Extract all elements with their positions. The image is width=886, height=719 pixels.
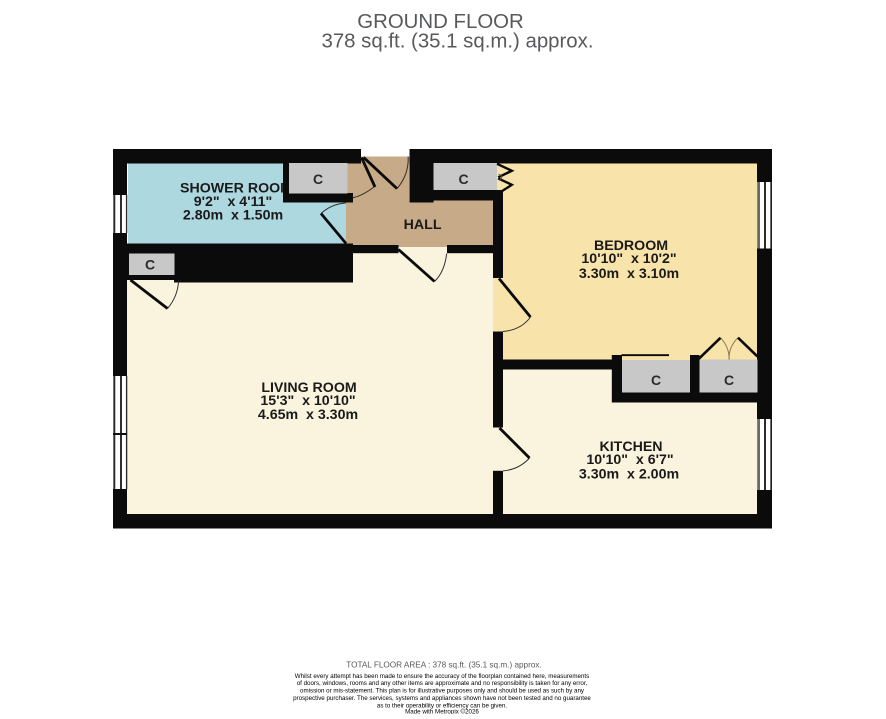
svg-text:C: C — [458, 171, 468, 187]
svg-text:of doors, windows, rooms and a: of doors, windows, rooms and any other i… — [297, 680, 588, 687]
svg-text:C: C — [313, 171, 323, 187]
svg-text:4.65m x 3.30m: 4.65m x 3.30m — [258, 407, 358, 423]
svg-text:378 sq.ft. (35.1 sq.m.) approx: 378 sq.ft. (35.1 sq.m.) approx. — [321, 31, 593, 53]
svg-text:10'10" x 6'7": 10'10" x 6'7" — [586, 452, 673, 468]
svg-text:Made with Metropix ©2026: Made with Metropix ©2026 — [405, 709, 479, 715]
svg-text:TOTAL FLOOR AREA : 378 sq.ft.: TOTAL FLOOR AREA : 378 sq.ft. (35.1 sq.m… — [346, 660, 542, 669]
svg-text:C: C — [651, 372, 661, 388]
svg-text:Whilst every attempt has been: Whilst every attempt has been made to en… — [295, 673, 589, 680]
svg-text:2.80m x 1.50m: 2.80m x 1.50m — [183, 208, 283, 224]
svg-text:prospective purchaser. The ser: prospective purchaser. The services, sys… — [293, 695, 591, 702]
svg-text:3.30m x 3.10m: 3.30m x 3.10m — [579, 266, 679, 282]
svg-text:10'10" x 10'2": 10'10" x 10'2" — [581, 251, 676, 267]
svg-text:C: C — [145, 257, 155, 273]
svg-text:HALL: HALL — [404, 217, 442, 233]
svg-text:C: C — [724, 372, 734, 388]
svg-text:3.30m x 2.00m: 3.30m x 2.00m — [579, 467, 679, 483]
svg-text:omission or mis-statement. Thi: omission or mis-statement. This plan is … — [300, 688, 585, 695]
